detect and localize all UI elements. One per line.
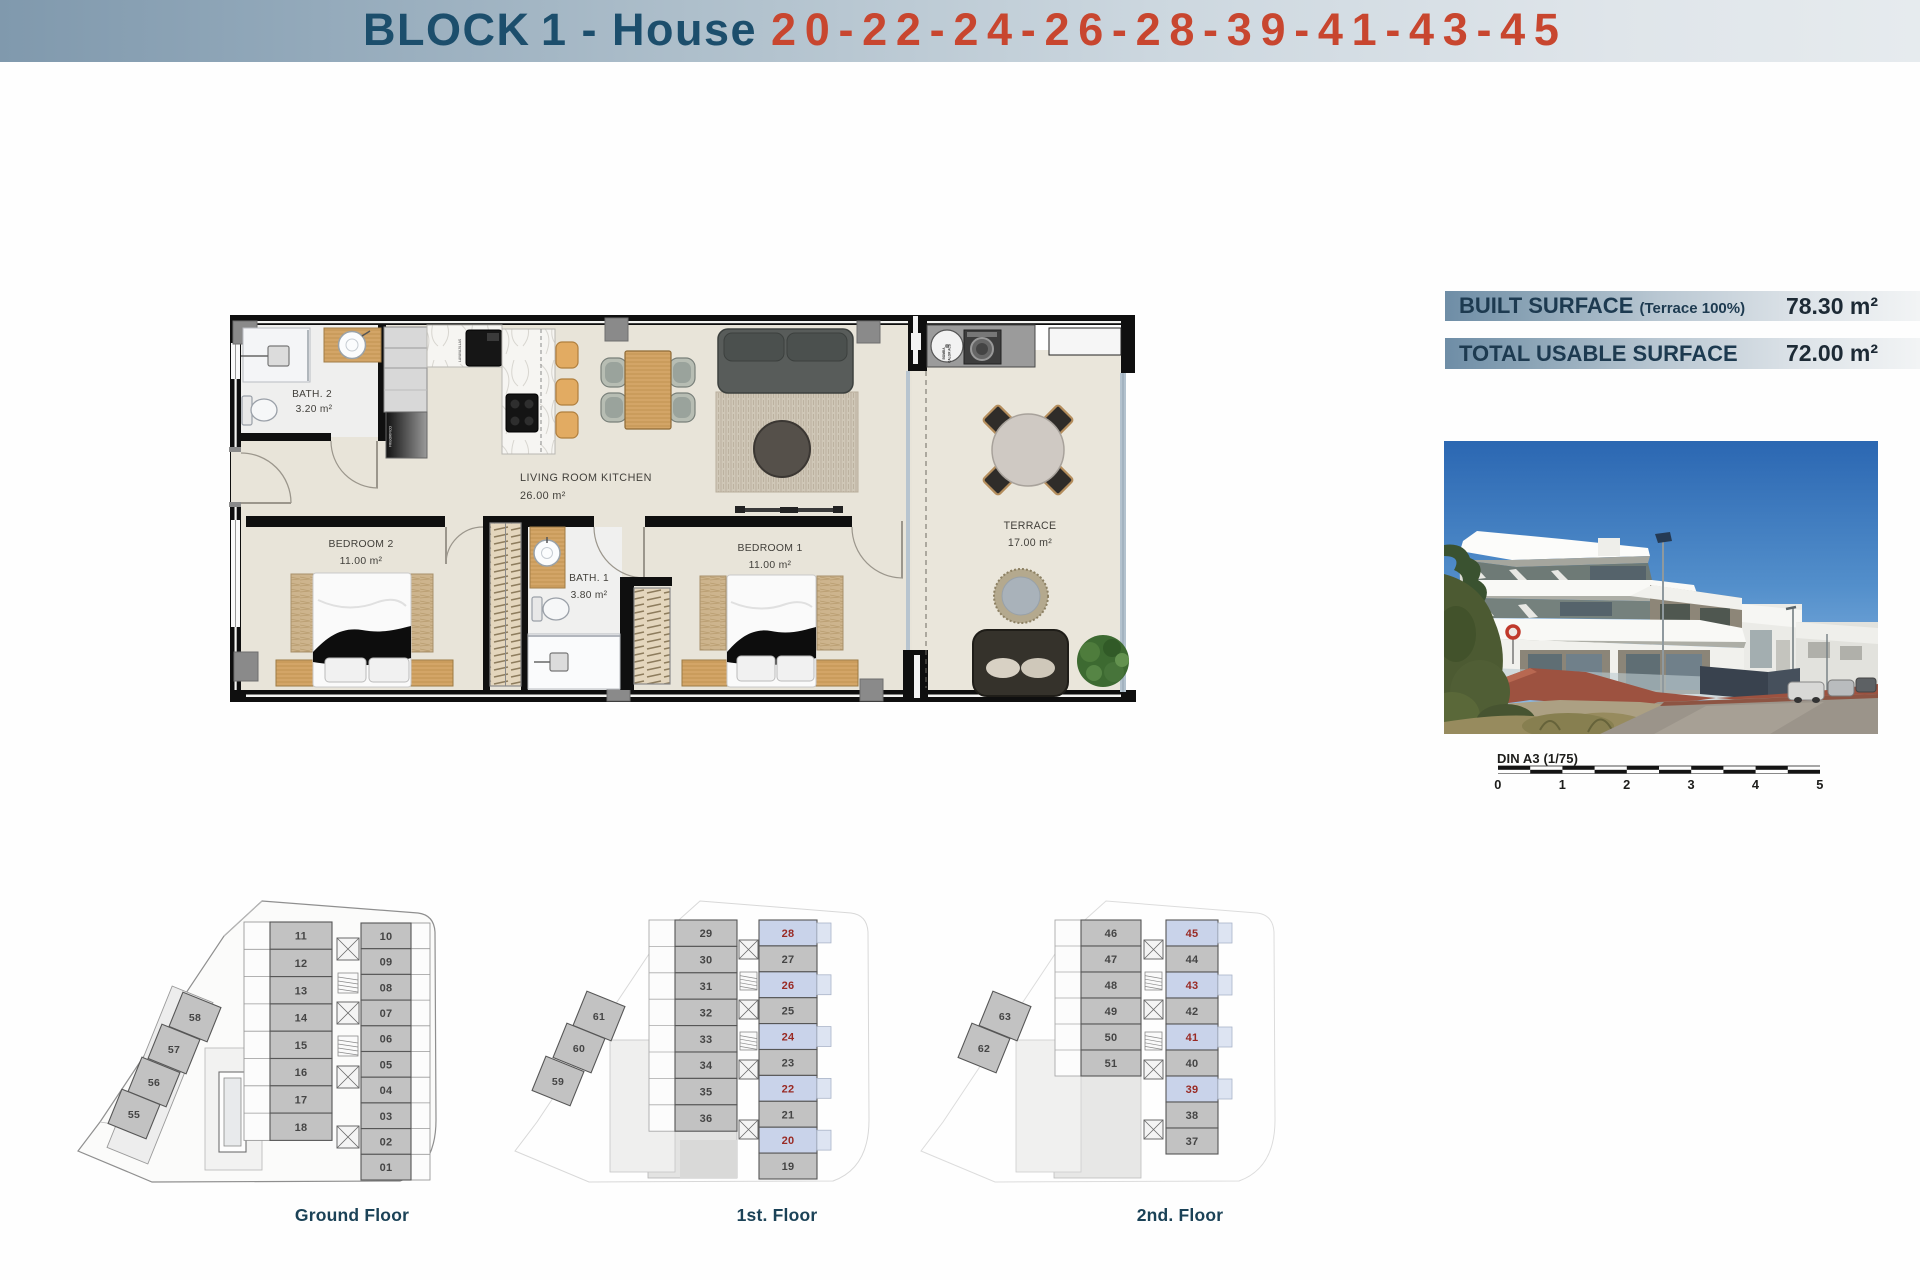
svg-text:26: 26 [782,980,795,992]
svg-text:18: 18 [295,1122,308,1134]
svg-text:BEDROOM 1: BEDROOM 1 [737,543,802,554]
svg-text:60: 60 [573,1043,585,1055]
svg-text:BATH. 2: BATH. 2 [292,389,332,400]
svg-text:49: 49 [1105,1006,1118,1018]
svg-text:12: 12 [295,958,308,970]
svg-text:BATH. 1: BATH. 1 [569,573,609,584]
svg-text:LIVING ROOM KITCHEN: LIVING ROOM KITCHEN [520,472,652,484]
svg-text:28: 28 [782,928,795,940]
svg-text:62: 62 [978,1043,990,1055]
svg-text:DIN A3 (1/75): DIN A3 (1/75) [1497,751,1578,766]
svg-text:30: 30 [700,955,713,967]
svg-text:Ground Floor: Ground Floor [295,1205,409,1225]
svg-text:47: 47 [1105,954,1118,966]
svg-text:3.80 m²: 3.80 m² [571,590,608,601]
svg-text:41: 41 [1186,1032,1199,1044]
svg-text:55: 55 [128,1109,140,1121]
svg-text:44: 44 [1186,954,1199,966]
svg-text:4: 4 [1752,777,1760,792]
svg-text:TERRACE: TERRACE [1004,520,1057,532]
svg-text:56: 56 [148,1077,160,1089]
svg-text:15: 15 [295,1040,308,1052]
svg-text:04: 04 [380,1085,393,1097]
svg-text:1st. Floor: 1st. Floor [737,1205,818,1225]
svg-text:57: 57 [168,1044,180,1056]
svg-text:05: 05 [380,1059,393,1071]
svg-text:48: 48 [1105,980,1118,992]
svg-text:0: 0 [1494,777,1501,792]
svg-text:25: 25 [782,1006,795,1018]
svg-text:2: 2 [1623,777,1630,792]
svg-text:35: 35 [700,1087,713,1099]
svg-text:23: 23 [782,1057,795,1069]
svg-text:43: 43 [1186,980,1199,992]
svg-text:22: 22 [782,1083,795,1095]
svg-text:58: 58 [189,1012,201,1024]
svg-text:08: 08 [380,982,393,994]
svg-text:BEDROOM 2: BEDROOM 2 [328,539,393,550]
svg-text:3.20 m²: 3.20 m² [296,404,333,415]
svg-text:20: 20 [782,1135,795,1147]
svg-text:2nd. Floor: 2nd. Floor [1137,1205,1224,1225]
svg-text:10: 10 [380,931,393,943]
svg-text:36: 36 [700,1113,713,1125]
svg-text:FRIGORIFICO: FRIGORIFICO [389,426,393,447]
svg-text:33: 33 [700,1034,713,1046]
svg-text:61: 61 [593,1011,605,1023]
svg-text:24: 24 [782,1032,795,1044]
svg-text:CALOR ACS: CALOR ACS [948,344,952,363]
svg-text:11.00 m²: 11.00 m² [340,556,383,567]
svg-text:11.00 m²: 11.00 m² [749,560,792,571]
svg-text:02: 02 [380,1136,393,1148]
svg-text:51: 51 [1105,1058,1118,1070]
svg-text:19: 19 [782,1161,795,1173]
svg-text:5: 5 [1816,777,1823,792]
svg-text:16: 16 [295,1067,308,1079]
svg-text:40: 40 [1186,1058,1199,1070]
svg-text:50: 50 [1105,1032,1118,1044]
svg-text:42: 42 [1186,1006,1199,1018]
svg-text:46: 46 [1105,928,1118,940]
svg-text:21: 21 [782,1109,795,1121]
svg-text:BOMBA: BOMBA [942,347,946,360]
svg-text:3: 3 [1687,777,1694,792]
svg-text:63: 63 [999,1011,1011,1023]
svg-text:45: 45 [1186,928,1199,940]
svg-text:26.00 m²: 26.00 m² [520,490,566,502]
svg-text:17: 17 [295,1094,308,1106]
svg-text:07: 07 [380,1008,393,1020]
svg-text:32: 32 [700,1007,713,1019]
svg-text:06: 06 [380,1034,393,1046]
svg-text:59: 59 [552,1076,564,1088]
svg-text:27: 27 [782,954,795,966]
svg-text:37: 37 [1186,1136,1199,1148]
svg-text:31: 31 [700,981,713,993]
svg-text:09: 09 [380,957,393,969]
svg-text:14: 14 [295,1013,308,1025]
svg-text:13: 13 [295,985,308,997]
svg-text:38: 38 [1186,1110,1199,1122]
svg-text:39: 39 [1186,1084,1199,1096]
svg-text:03: 03 [380,1111,393,1123]
svg-text:LAVAVAJILLAS: LAVAVAJILLAS [458,338,462,362]
svg-text:29: 29 [700,928,713,940]
svg-text:17.00 m²: 17.00 m² [1008,537,1052,549]
svg-text:1: 1 [1559,777,1566,792]
svg-text:11: 11 [295,931,307,943]
svg-text:34: 34 [700,1060,713,1072]
svg-text:01: 01 [380,1162,393,1174]
